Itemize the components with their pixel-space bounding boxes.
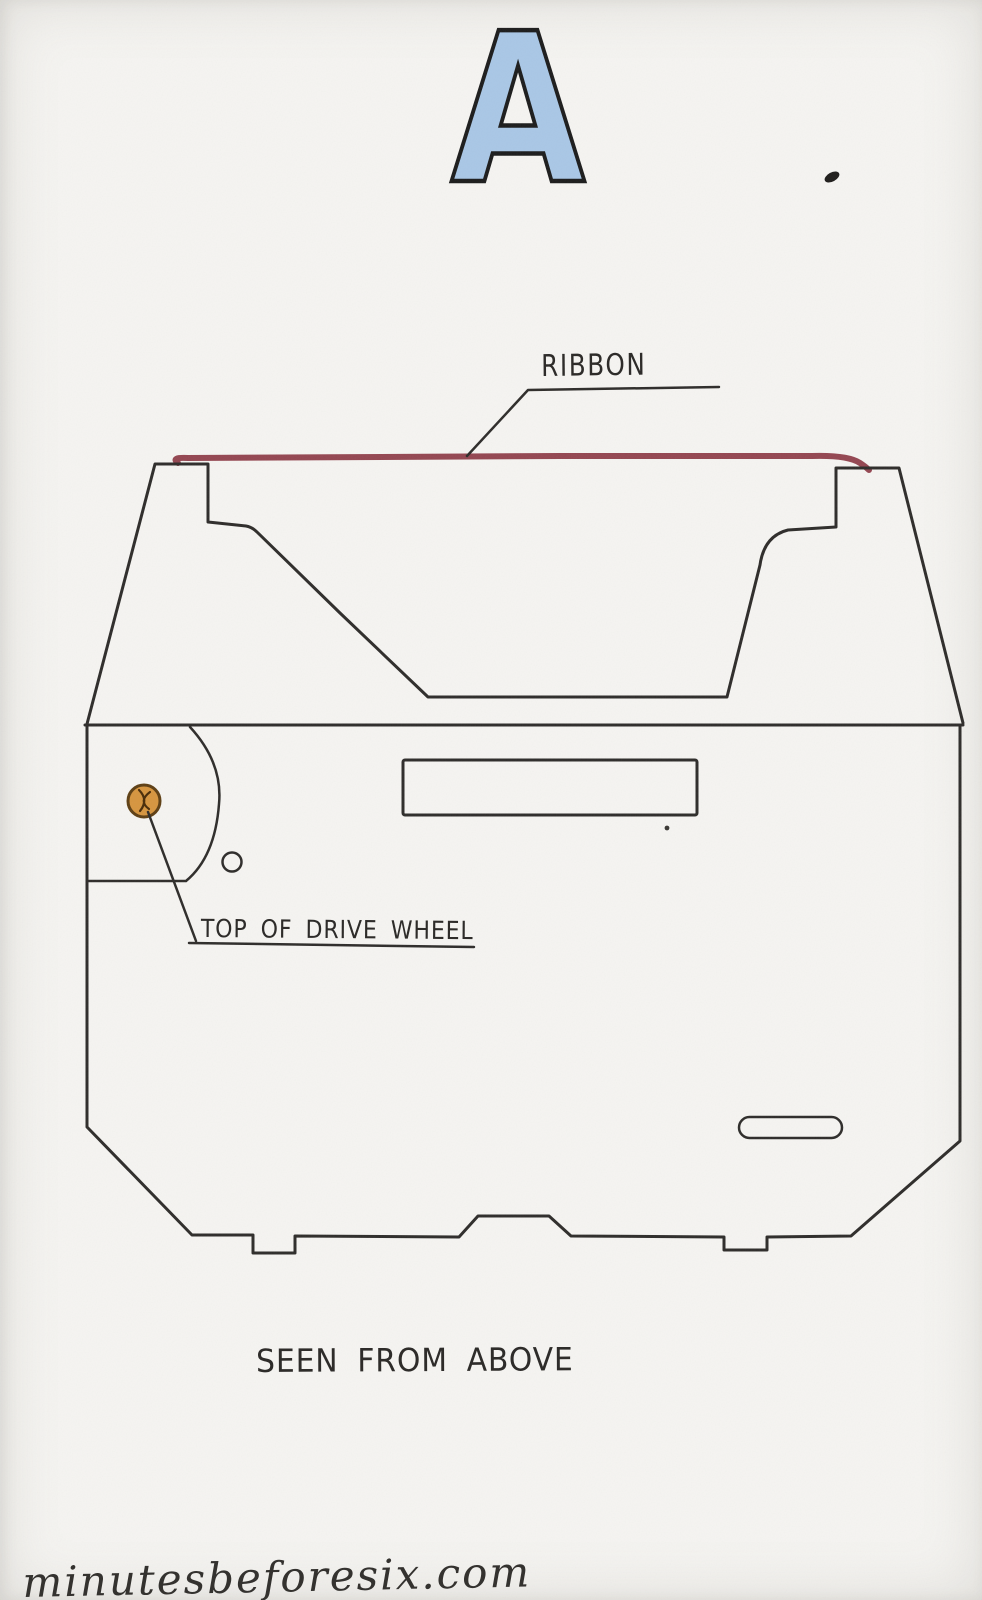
watermark-text: minutesbeforesix.com	[22, 1549, 532, 1600]
ribbon-label: RIBBON	[541, 350, 647, 384]
caption-seen-from-above: SEEN FROM ABOVE	[256, 1342, 574, 1378]
drive-wheel-label: TOP OF DRIVE WHEEL	[201, 915, 474, 944]
scanned-page: A RIB	[0, 0, 982, 1600]
